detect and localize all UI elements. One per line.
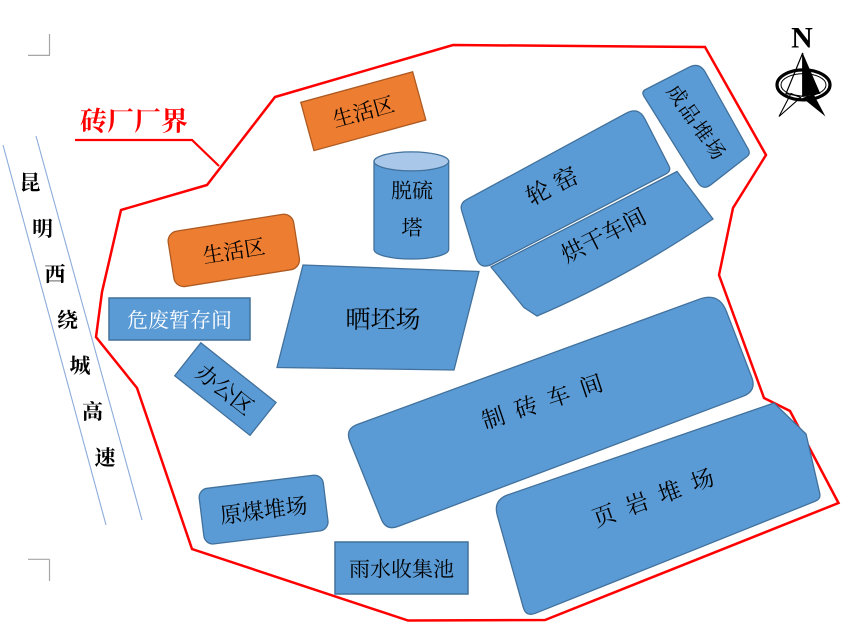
svg-text:脱硫: 脱硫 [391, 175, 433, 205]
svg-text:明: 明 [32, 213, 53, 243]
svg-text:城: 城 [70, 350, 91, 380]
svg-text:N: N [791, 22, 813, 55]
svg-text:西: 西 [45, 259, 66, 289]
svg-text:晒坯场: 晒坯场 [345, 300, 420, 336]
svg-text:砖厂厂界: 砖厂厂界 [80, 100, 188, 139]
svg-text:绕: 绕 [57, 304, 78, 334]
svg-text:昆: 昆 [20, 167, 41, 197]
svg-text:危废暂存间: 危废暂存间 [127, 305, 232, 335]
svg-text:塔: 塔 [402, 212, 423, 242]
svg-text:速: 速 [95, 442, 116, 472]
svg-text:雨水收集池: 雨水收集池 [349, 554, 454, 584]
svg-text:高: 高 [82, 396, 103, 426]
